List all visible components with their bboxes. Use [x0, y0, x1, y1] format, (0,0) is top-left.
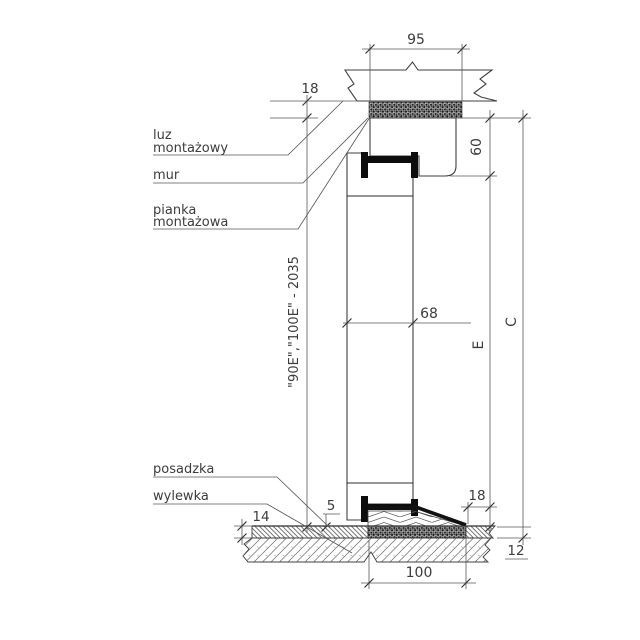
dim-12-value: 12	[507, 543, 524, 559]
dim-E-value: E	[471, 341, 487, 350]
dim-95-value: 95	[407, 32, 425, 48]
dim-18-bottom-value: 18	[468, 488, 485, 504]
mounting-foam-top	[369, 102, 462, 118]
callout-posadzka-line1: posadzka	[153, 462, 214, 477]
dim-18-top-value: 18	[301, 81, 318, 97]
dim-C-value: C	[504, 317, 520, 327]
bottom-left-seal	[361, 496, 368, 522]
top-horizontal-seal	[368, 156, 414, 163]
dim-opening-height: "90E","100E" - 2035	[287, 95, 312, 533]
floor-finish-right	[466, 526, 495, 538]
wall-lintel	[345, 62, 497, 101]
callout-mur-line1: mur	[153, 168, 180, 183]
dim-right-stack: 60 E C	[450, 110, 531, 545]
dim-60-value: 60	[469, 138, 485, 156]
dim-68-value: 68	[420, 306, 438, 322]
screed-layer	[243, 538, 491, 562]
dim-12: 12	[505, 543, 528, 559]
technical-drawing-page: 95 18 "90E","100E" - 2035 60 E C 12	[0, 0, 640, 640]
dim-opening-height-value: "90E","100E" - 2035	[287, 256, 302, 388]
door-leaf	[347, 153, 413, 520]
dim-5-value: 5	[327, 498, 336, 514]
mounting-foam-bottom	[368, 526, 466, 538]
dim-100-value: 100	[406, 565, 433, 581]
callout-luz-line2: montażowy	[153, 141, 228, 156]
dim-18-top: 18	[270, 81, 357, 123]
threshold-profile	[368, 506, 466, 526]
top-right-seal	[411, 152, 418, 178]
door-section-drawing: 95 18 "90E","100E" - 2035 60 E C 12	[0, 0, 640, 640]
callout-luz-montazowy: luz montażowy	[153, 101, 343, 156]
callouts: luz montażowy mur pianka montażowa posad…	[153, 101, 372, 553]
callout-pianka-montazowa: pianka montażowa	[153, 114, 372, 230]
gaskets	[361, 152, 418, 522]
floor-finish-left	[252, 526, 368, 538]
wall-lintel-shape	[345, 62, 497, 101]
top-left-seal	[361, 152, 368, 178]
door-leaf-honeycomb-core	[347, 196, 413, 483]
mounting-foam-top-band	[369, 102, 462, 118]
dim-68: 68	[343, 306, 472, 328]
dim-14-value: 14	[252, 509, 269, 525]
callout-wylewka-line1: wylewka	[153, 489, 209, 504]
callout-pianka-line2: montażowa	[153, 215, 228, 230]
dim-18-bottom: 18	[461, 488, 497, 524]
